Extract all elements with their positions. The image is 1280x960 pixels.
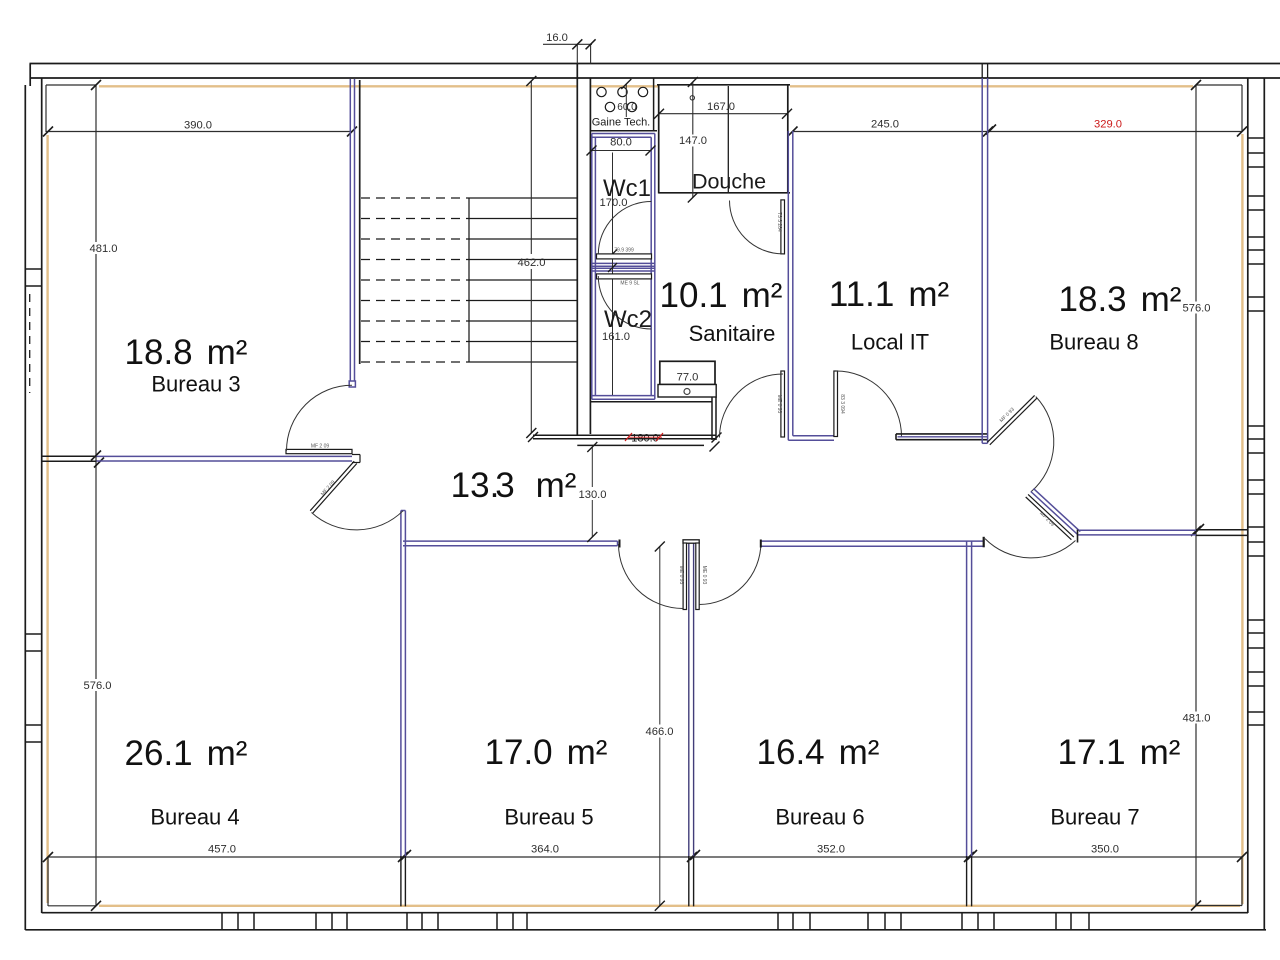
- svg-text:167.0: 167.0: [707, 101, 735, 113]
- svg-text:Gaine Tech.: Gaine Tech.: [592, 117, 651, 129]
- svg-text:ME 0 93: ME 0 93: [776, 395, 782, 414]
- svg-text:576.0: 576.0: [1183, 303, 1211, 315]
- svg-text:Bureau 7: Bureau 7: [1050, 805, 1139, 830]
- svg-text:Wc2: Wc2: [604, 306, 652, 333]
- svg-text:17.1 m²: 17.1 m²: [1058, 733, 1181, 772]
- svg-text:17.0 m²: 17.0 m²: [485, 733, 608, 772]
- svg-text:364.0: 364.0: [531, 844, 559, 856]
- svg-text:245.0: 245.0: [871, 119, 899, 131]
- svg-text:462.0: 462.0: [518, 257, 546, 269]
- svg-text:170.0: 170.0: [600, 197, 628, 209]
- svg-text:60.0: 60.0: [617, 102, 637, 113]
- svg-text:352.0: 352.0: [817, 844, 845, 856]
- svg-text:Sanitaire: Sanitaire: [689, 321, 776, 346]
- svg-text:147.0: 147.0: [679, 135, 707, 147]
- svg-text:18.3 m²: 18.3 m²: [1059, 280, 1182, 319]
- svg-text:MF 2 09: MF 2 09: [311, 444, 330, 450]
- svg-text:16.0: 16.0: [546, 32, 568, 44]
- svg-text:390.0: 390.0: [184, 120, 212, 132]
- svg-text:ME 0 93: ME 0 93: [678, 566, 684, 585]
- svg-text:26.1 m²: 26.1 m²: [125, 734, 248, 773]
- svg-text:466.0: 466.0: [646, 726, 674, 738]
- svg-text:329.0: 329.0: [1094, 119, 1122, 131]
- svg-text:10.1 m²: 10.1 m²: [660, 276, 783, 315]
- svg-text:11.1 m²: 11.1 m²: [829, 275, 949, 314]
- svg-text:79.9 399: 79.9 399: [614, 248, 634, 254]
- svg-text:180.0: 180.0: [631, 433, 659, 445]
- svg-text:73 3 284: 73 3 284: [776, 212, 782, 232]
- svg-text:457.0: 457.0: [208, 844, 236, 856]
- svg-text:350.0: 350.0: [1091, 844, 1119, 856]
- svg-text:Bureau 8: Bureau 8: [1049, 330, 1138, 355]
- svg-text:18.8 m²: 18.8 m²: [125, 333, 248, 372]
- svg-text:3: 3: [495, 466, 514, 505]
- svg-text:m²: m²: [536, 466, 577, 505]
- svg-text:83 3 094: 83 3 094: [839, 394, 845, 414]
- svg-text:Bureau 5: Bureau 5: [504, 805, 593, 830]
- svg-text:ME 9 SL: ME 9 SL: [620, 281, 639, 287]
- svg-text:481.0: 481.0: [1183, 713, 1211, 725]
- svg-text:Douche: Douche: [692, 170, 766, 194]
- svg-text:80.0: 80.0: [610, 137, 632, 149]
- svg-text:16.4 m²: 16.4 m²: [757, 733, 880, 772]
- svg-text:481.0: 481.0: [90, 243, 118, 255]
- svg-text:13.: 13.: [451, 466, 500, 505]
- svg-text:161.0: 161.0: [602, 331, 630, 343]
- svg-text:Local IT: Local IT: [851, 330, 929, 355]
- svg-text:Bureau 3: Bureau 3: [151, 372, 240, 397]
- svg-text:576.0: 576.0: [84, 680, 112, 692]
- svg-text:77.0: 77.0: [677, 372, 699, 384]
- svg-text:Bureau 6: Bureau 6: [775, 805, 864, 830]
- svg-text:Bureau 4: Bureau 4: [150, 805, 239, 830]
- svg-text:130.0: 130.0: [579, 489, 607, 501]
- svg-text:ME 0 93: ME 0 93: [701, 566, 707, 585]
